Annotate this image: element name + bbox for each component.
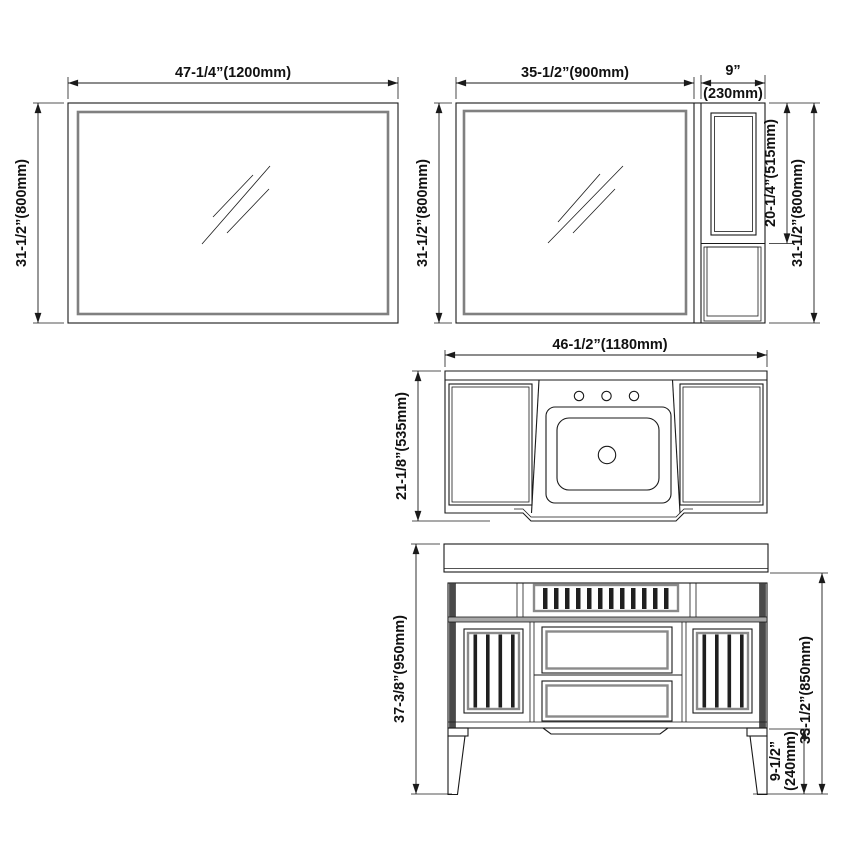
dim-label-side-width-mm: (230mm) <box>703 86 763 102</box>
stile-right <box>760 583 766 728</box>
dim-label-leg-height-in: 9-1/2” <box>768 741 784 781</box>
technical-drawing-canvas: 47-1/4”(1200mm) 31-1/2”(800mm) <box>0 0 860 860</box>
dim-label-mirror2-width: 35-1/2”(900mm) <box>521 65 629 81</box>
dim-label-mirror2-height-right: 31-1/2”(800mm) <box>790 159 806 267</box>
drawing-sheet: 47-1/4”(1200mm) 31-1/2”(800mm) <box>0 0 860 860</box>
dim-label-mirror-large-height: 31-1/2”(800mm) <box>14 159 30 267</box>
sheet-background <box>0 0 860 860</box>
stile-left <box>450 583 456 728</box>
top-rail <box>448 617 767 622</box>
dim-label-mirror2-height-left: 31-1/2”(800mm) <box>415 159 431 267</box>
dim-label-leg-height-mm: (240mm) <box>783 731 799 791</box>
dim-label-countertop-depth: 21-1/8”(535mm) <box>394 392 410 500</box>
dim-label-mirror-large-width: 47-1/4”(1200mm) <box>175 65 291 81</box>
dim-label-vanity-body-height: 33-1/2”(850mm) <box>798 636 814 744</box>
dim-label-side-door-height: 20-1/4”(515mm) <box>763 119 779 227</box>
dim-label-vanity-total-height: 37-3/8”(950mm) <box>392 615 408 723</box>
dim-label-countertop-width: 46-1/2”(1180mm) <box>552 337 667 353</box>
dim-label-side-width-in: 9” <box>725 63 740 79</box>
